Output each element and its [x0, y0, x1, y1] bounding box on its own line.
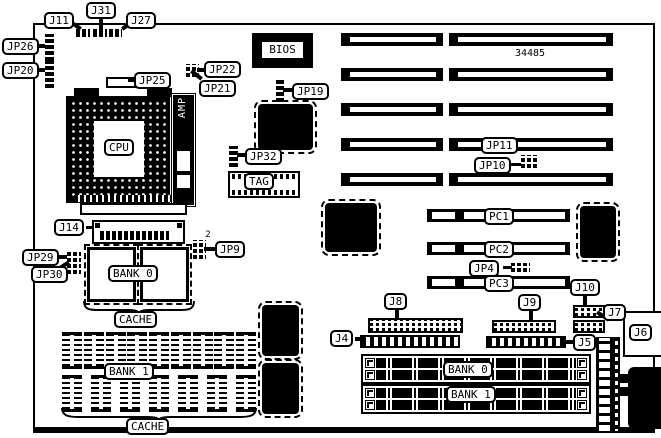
header-jp4	[511, 263, 530, 272]
simm-latch	[577, 370, 587, 380]
callout-jp25: JP25	[134, 72, 171, 89]
isa-slot	[449, 138, 613, 151]
cache-chip-dip	[171, 332, 191, 369]
callout-j8: J8	[384, 293, 407, 310]
simm-latch	[577, 388, 587, 398]
motherboard-diagram: J11 J31 J27 JP26 JP20 JP25 JP22 JP21 BIO…	[0, 0, 661, 438]
board-edge-left	[33, 23, 35, 429]
leader-jp4	[503, 266, 512, 269]
isa-slot	[341, 68, 443, 81]
jp9-pin1-label: 2	[204, 230, 212, 240]
isa-slot	[341, 173, 443, 186]
callout-j11: J11	[44, 12, 74, 29]
callout-bank1-cache: BANK 1	[104, 363, 154, 380]
leader-jp10	[510, 163, 521, 166]
keyboard-connector	[628, 367, 661, 429]
qfp-chip	[325, 203, 377, 252]
callout-bank0-cache: BANK 0	[108, 265, 158, 282]
isa-slot	[341, 103, 443, 116]
j14-socket	[92, 220, 185, 244]
simm-latch	[577, 400, 587, 410]
callout-jp26: JP26	[2, 38, 39, 55]
header-j9	[492, 320, 556, 333]
cpu-pin-row	[74, 195, 172, 202]
cache-chip-dip	[214, 332, 234, 369]
isa-slot	[449, 33, 613, 46]
callout-j6: J6	[629, 324, 652, 341]
callout-jp30: JP30	[31, 266, 68, 283]
callout-jp11: JP11	[481, 137, 518, 154]
leader-jp29	[57, 255, 67, 259]
callout-cache-lower: CACHE	[126, 418, 169, 435]
callout-bank1-simm: BANK 1	[446, 386, 496, 403]
callout-j31: J31	[86, 2, 116, 19]
amp-label: AMP	[177, 97, 188, 118]
callout-jp21: JP21	[199, 80, 236, 97]
simm-latch	[365, 388, 375, 398]
connector-j4	[360, 335, 460, 348]
callout-jp22: JP22	[204, 61, 241, 78]
amp-window	[177, 151, 190, 171]
j14-key	[177, 223, 182, 228]
connector-j27	[109, 29, 122, 37]
simm-latch	[365, 400, 375, 410]
header-j7	[573, 320, 605, 333]
callout-j14: J14	[54, 219, 84, 236]
j14-key	[95, 223, 100, 228]
isa-slot	[449, 103, 613, 116]
header-j8	[368, 318, 463, 333]
callout-tag: TAG	[244, 173, 274, 190]
leader-j14	[86, 226, 94, 229]
isa-slot	[449, 68, 613, 81]
qfp-chip	[580, 206, 616, 258]
callout-j5: J5	[573, 334, 596, 351]
callout-jp20: JP20	[2, 62, 39, 79]
callout-bank0-simm: BANK 0	[443, 361, 493, 378]
qfp-chip	[258, 104, 313, 150]
callout-j9: J9	[518, 294, 541, 311]
connector-j31	[93, 29, 107, 37]
callout-jp19: JP19	[292, 83, 329, 100]
simm-latch	[365, 358, 375, 368]
power-connector	[596, 337, 620, 432]
callout-j7: J7	[603, 304, 626, 321]
isa-slot	[449, 173, 613, 186]
simm-latch	[365, 370, 375, 380]
callout-pc2: PC2	[484, 241, 514, 258]
callout-pc1: PC1	[484, 208, 514, 225]
callout-jp9: JP9	[215, 241, 245, 258]
callout-j4: J4	[330, 330, 353, 347]
header-jp10	[521, 155, 537, 168]
board-number: 34485	[500, 48, 560, 59]
cache-chip-dip	[193, 332, 213, 369]
simm-latch	[577, 358, 587, 368]
header-jp20	[45, 61, 54, 88]
cache-bank1-grid	[62, 332, 256, 412]
callout-pc3: PC3	[484, 275, 514, 292]
bios-label: BIOS	[262, 42, 303, 58]
cache-chip-dip	[236, 332, 256, 369]
callout-j10: J10	[570, 279, 600, 296]
callout-cpu: CPU	[104, 139, 134, 156]
j14-contacts	[100, 231, 169, 240]
callout-jp32: JP32	[245, 148, 282, 165]
cache-chip-dip	[62, 332, 82, 369]
qfp-chip	[262, 305, 299, 356]
callout-jp10: JP10	[474, 157, 511, 174]
leader-j4	[355, 337, 362, 341]
header-jp26	[45, 34, 54, 61]
callout-cache-upper: CACHE	[114, 311, 157, 328]
isa-slot	[341, 33, 443, 46]
socket-lever	[80, 203, 187, 215]
connector-j5	[486, 336, 566, 348]
amp-window	[177, 175, 190, 188]
amp-regulator: AMP	[172, 94, 195, 206]
callout-jp29: JP29	[22, 249, 59, 266]
qfp-chip	[262, 363, 299, 414]
isa-slot	[341, 138, 443, 151]
cache-chip-dip	[84, 332, 104, 369]
callout-j27: J27	[126, 12, 156, 29]
